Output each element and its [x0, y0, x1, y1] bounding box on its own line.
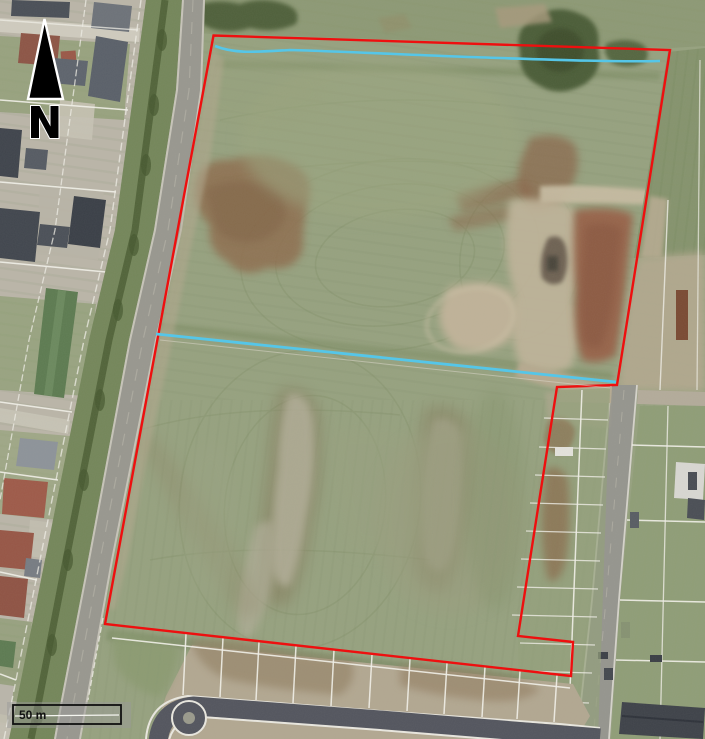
svg-text:50 m: 50 m — [19, 708, 46, 722]
